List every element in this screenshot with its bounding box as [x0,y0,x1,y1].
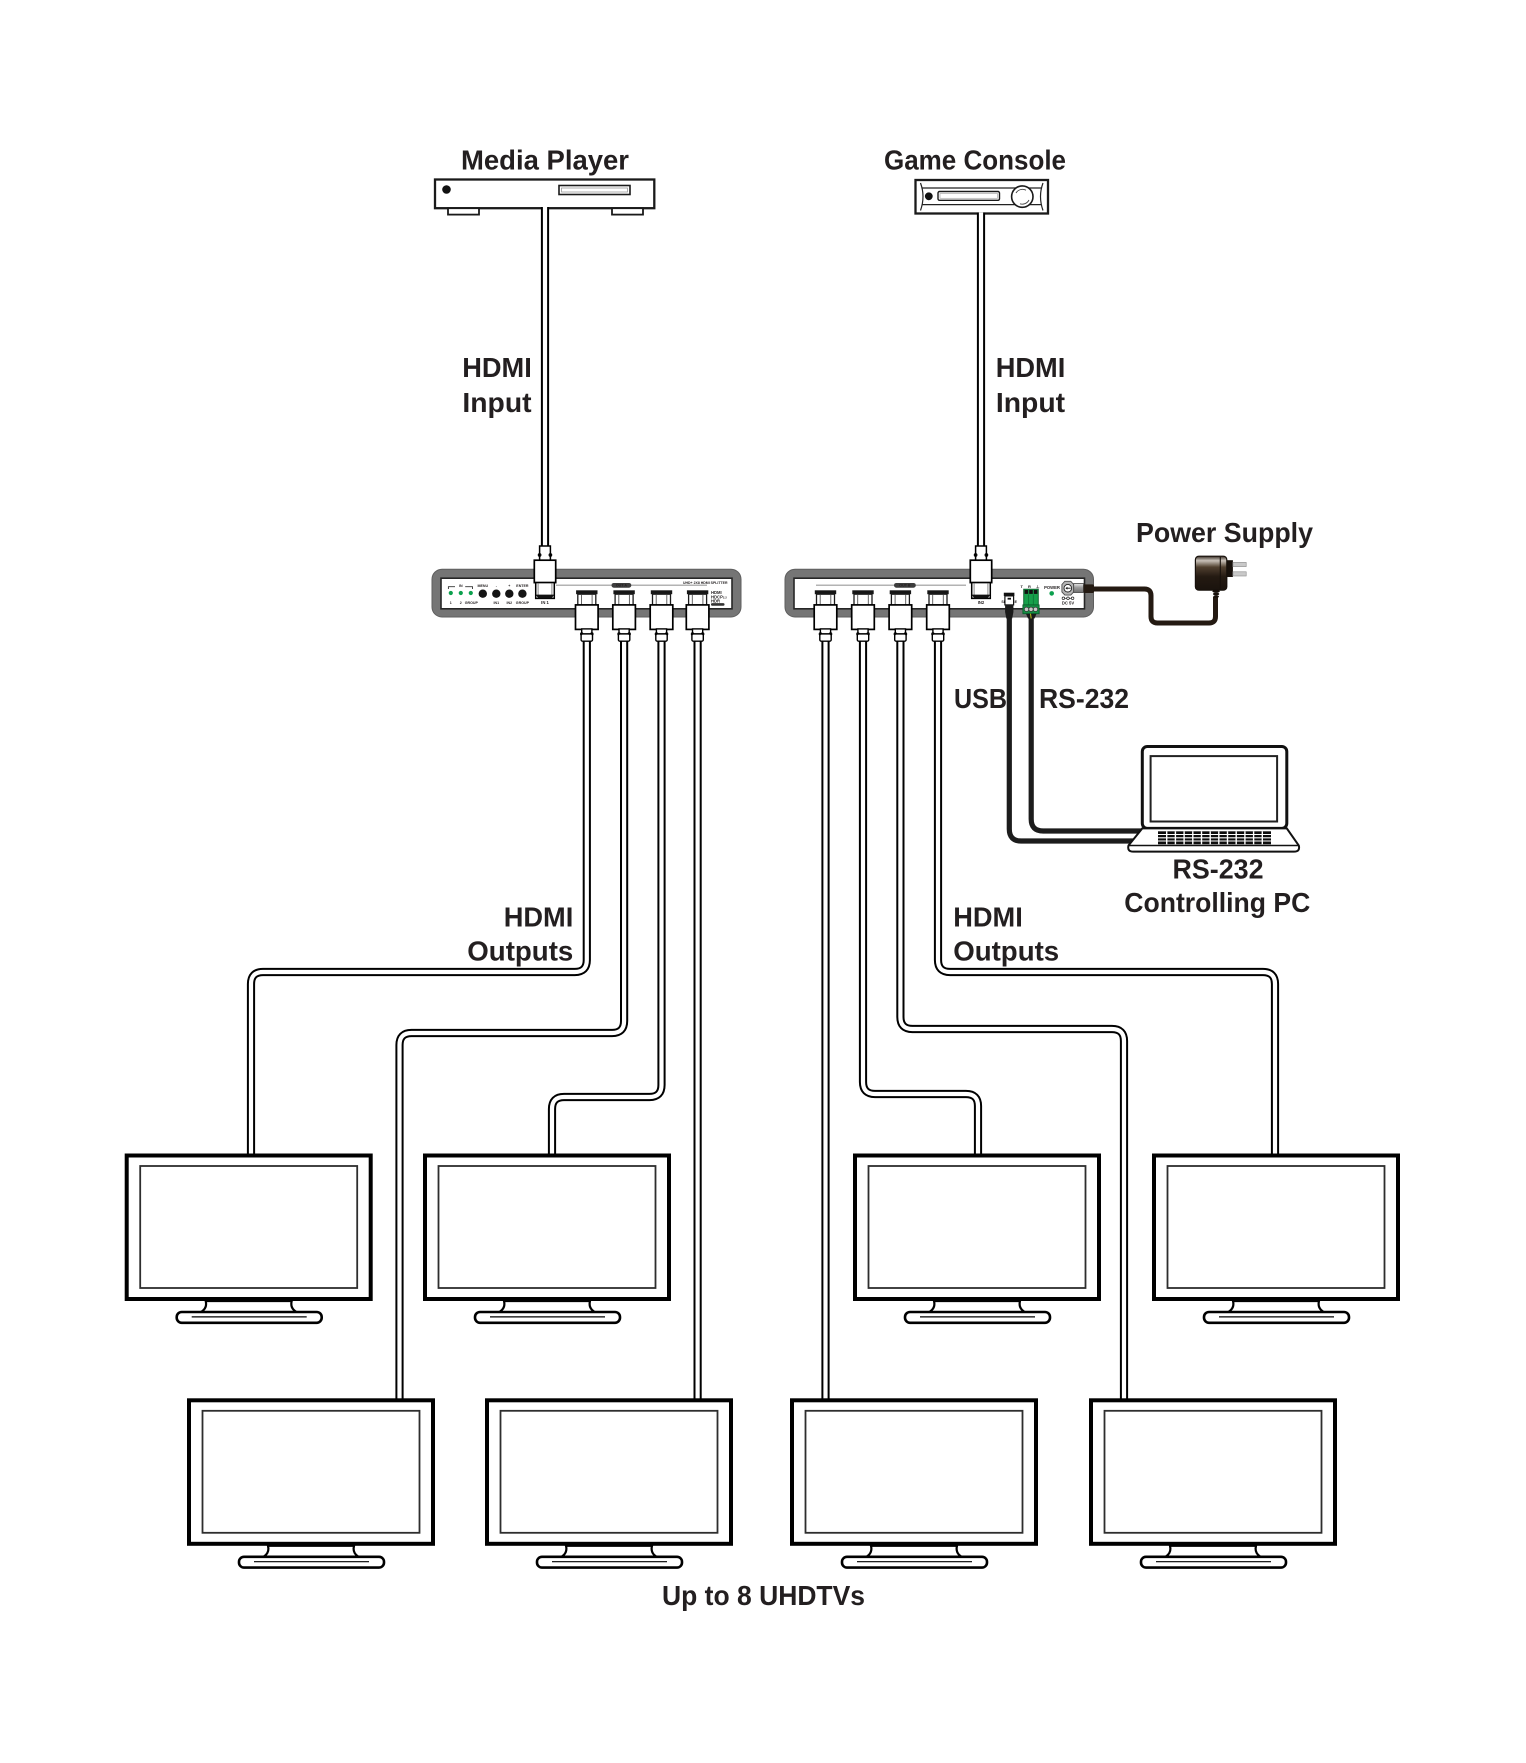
svg-text:RS-232: RS-232 [1039,683,1129,714]
svg-text:RS-232: RS-232 [1173,854,1264,885]
svg-text:2: 2 [460,601,462,605]
svg-text:POWER: POWER [1044,585,1060,590]
svg-text:Up to 8 UHDTVs: Up to 8 UHDTVs [662,1580,865,1611]
svg-text:MENU: MENU [478,584,489,588]
svg-text:Outputs: Outputs [467,936,573,967]
svg-text:1: 1 [450,601,452,605]
svg-text:GROUP: GROUP [465,601,479,605]
svg-text:HDMI: HDMI [953,902,1023,933]
svg-text:IN1: IN1 [494,601,500,605]
svg-text:HDMI: HDMI [462,352,532,383]
svg-text:USB: USB [954,683,1007,714]
svg-text:Game Console: Game Console [884,145,1066,176]
svg-text:+: + [508,584,510,588]
svg-text:HDMI: HDMI [504,902,574,933]
svg-text:HDMI: HDMI [996,352,1066,383]
svg-text:IN 1: IN 1 [541,600,549,605]
svg-text:GROUP: GROUP [516,601,530,605]
svg-text:HDR: HDR [711,598,720,603]
svg-text:IN2: IN2 [507,601,513,605]
svg-text:IN2: IN2 [978,600,985,605]
svg-text:T R ⊥: T R ⊥ [1020,584,1041,589]
svg-text:Power Supply: Power Supply [1136,517,1313,548]
svg-text:Controlling PC: Controlling PC [1124,887,1310,918]
svg-text:DC 5V: DC 5V [1062,600,1075,605]
svg-text:OUT A: OUT A [616,584,627,588]
svg-text:ENTER: ENTER [516,584,529,588]
svg-text:IN: IN [459,584,463,588]
svg-text:UHD+ 2X8 HDMI SPLITTER: UHD+ 2X8 HDMI SPLITTER [683,581,728,585]
svg-text:OUT B: OUT B [899,584,911,588]
svg-text:Input: Input [462,387,531,418]
svg-text:Outputs: Outputs [953,936,1059,967]
svg-text:Input: Input [996,387,1065,418]
svg-text:Media Player: Media Player [461,145,629,176]
